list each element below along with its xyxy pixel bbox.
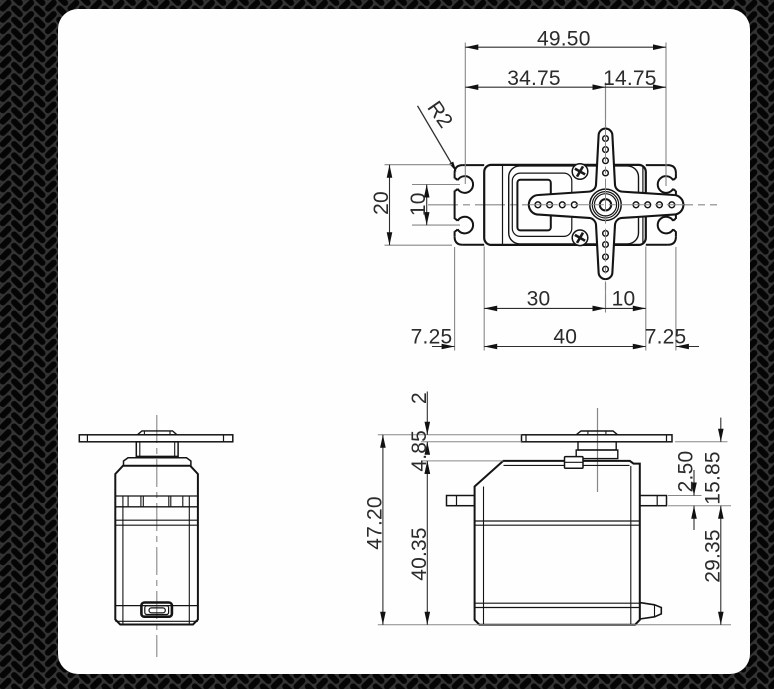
svg-text:20: 20 — [370, 191, 393, 215]
svg-text:40.35: 40.35 — [408, 527, 431, 581]
svg-text:30: 30 — [527, 288, 551, 311]
svg-text:15.85: 15.85 — [701, 451, 724, 505]
svg-text:10: 10 — [612, 288, 636, 311]
svg-text:29.35: 29.35 — [701, 529, 724, 583]
svg-text:34.75: 34.75 — [507, 67, 561, 90]
svg-text:7.25: 7.25 — [645, 326, 687, 349]
svg-text:47.20: 47.20 — [363, 496, 386, 550]
svg-text:10: 10 — [407, 192, 430, 216]
svg-text:2.50: 2.50 — [675, 451, 698, 493]
svg-text:2: 2 — [408, 392, 431, 404]
svg-text:49.50: 49.50 — [537, 28, 591, 51]
svg-text:14.75: 14.75 — [603, 67, 657, 90]
svg-text:7.25: 7.25 — [411, 326, 453, 349]
svg-text:40: 40 — [553, 326, 577, 349]
